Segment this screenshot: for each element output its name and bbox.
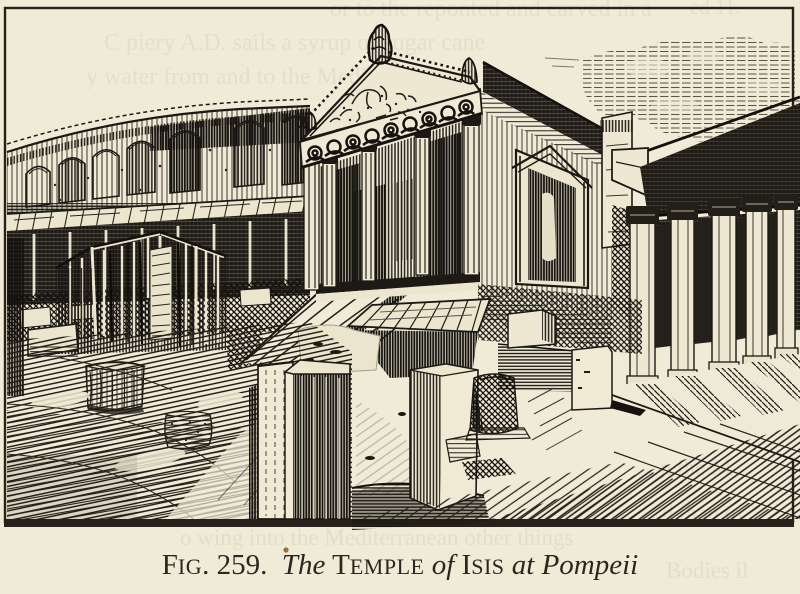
svg-text:C piery A.D. sails a syrup of: C piery A.D. sails a syrup of sugar cane <box>104 30 485 56</box>
svg-text:o wing into the Mediterranean: o wing into the Mediterranean other thin… <box>180 525 574 550</box>
svg-text:or to the reponted and carved: or to the reponted and carved in a <box>330 0 652 22</box>
svg-text:ed 11.: ed 11. <box>690 0 741 19</box>
